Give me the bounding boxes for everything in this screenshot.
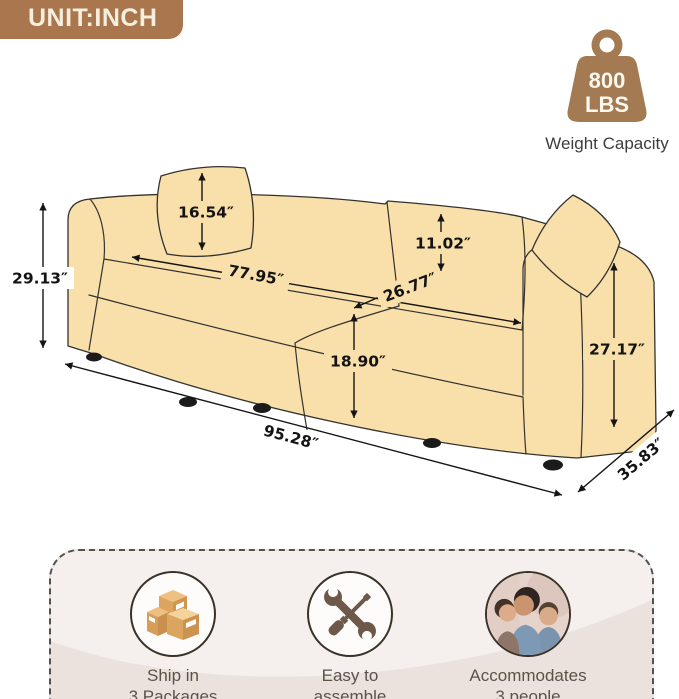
svg-text:11.02″: 11.02″ — [415, 235, 471, 253]
dimension-label-left-height: 29.13″ — [6, 267, 74, 289]
dimension-label-back-cushion-height: 11.02″ — [409, 232, 477, 254]
feature-assembly-label: Easy to assemble — [275, 666, 425, 699]
wrench — [320, 584, 379, 643]
unit-badge: UNIT:INCH — [0, 0, 183, 39]
feature-shipping-label: Ship in 3 Packages — [98, 666, 248, 699]
family-photo-icon — [485, 571, 571, 657]
feature-shipping: Ship in 3 Packages — [98, 571, 248, 699]
cardboard-boxes — [147, 590, 199, 640]
family-of-three — [487, 573, 569, 655]
svg-text:800: 800 — [589, 68, 626, 93]
svg-text:27.17″: 27.17″ — [589, 341, 645, 359]
weight-icon: 800 LBS — [557, 26, 657, 130]
assembly-tools-icon — [307, 571, 393, 657]
dimension-label-seat-height: 18.90″ — [324, 350, 392, 372]
feature-assembly: Easy to assemble — [275, 571, 425, 699]
dimension-label-arm-height: 27.17″ — [583, 338, 651, 360]
feature-capacity-label: Accommodates 3 people — [453, 666, 603, 699]
weight-caption: Weight Capacity — [527, 134, 679, 154]
dimension-label-pillow-height: 16.54″ — [172, 201, 240, 223]
svg-text:29.13″: 29.13″ — [12, 270, 68, 288]
features-panel: Ship in 3 Packages — [49, 549, 654, 699]
shipping-boxes-icon — [130, 571, 216, 657]
product-dimension-diagram: 29.13″ 16.54″ 77.95″ 11.02″ 26.77″ 18.90… — [0, 0, 679, 699]
svg-text:LBS: LBS — [585, 92, 629, 117]
svg-text:18.90″: 18.90″ — [330, 353, 386, 371]
weight-capacity-block: 800 LBS Weight Capacity — [527, 26, 679, 154]
sofa-illustration — [68, 167, 656, 471]
feature-capacity: Accommodates 3 people — [453, 571, 603, 699]
svg-text:16.54″: 16.54″ — [178, 204, 234, 222]
